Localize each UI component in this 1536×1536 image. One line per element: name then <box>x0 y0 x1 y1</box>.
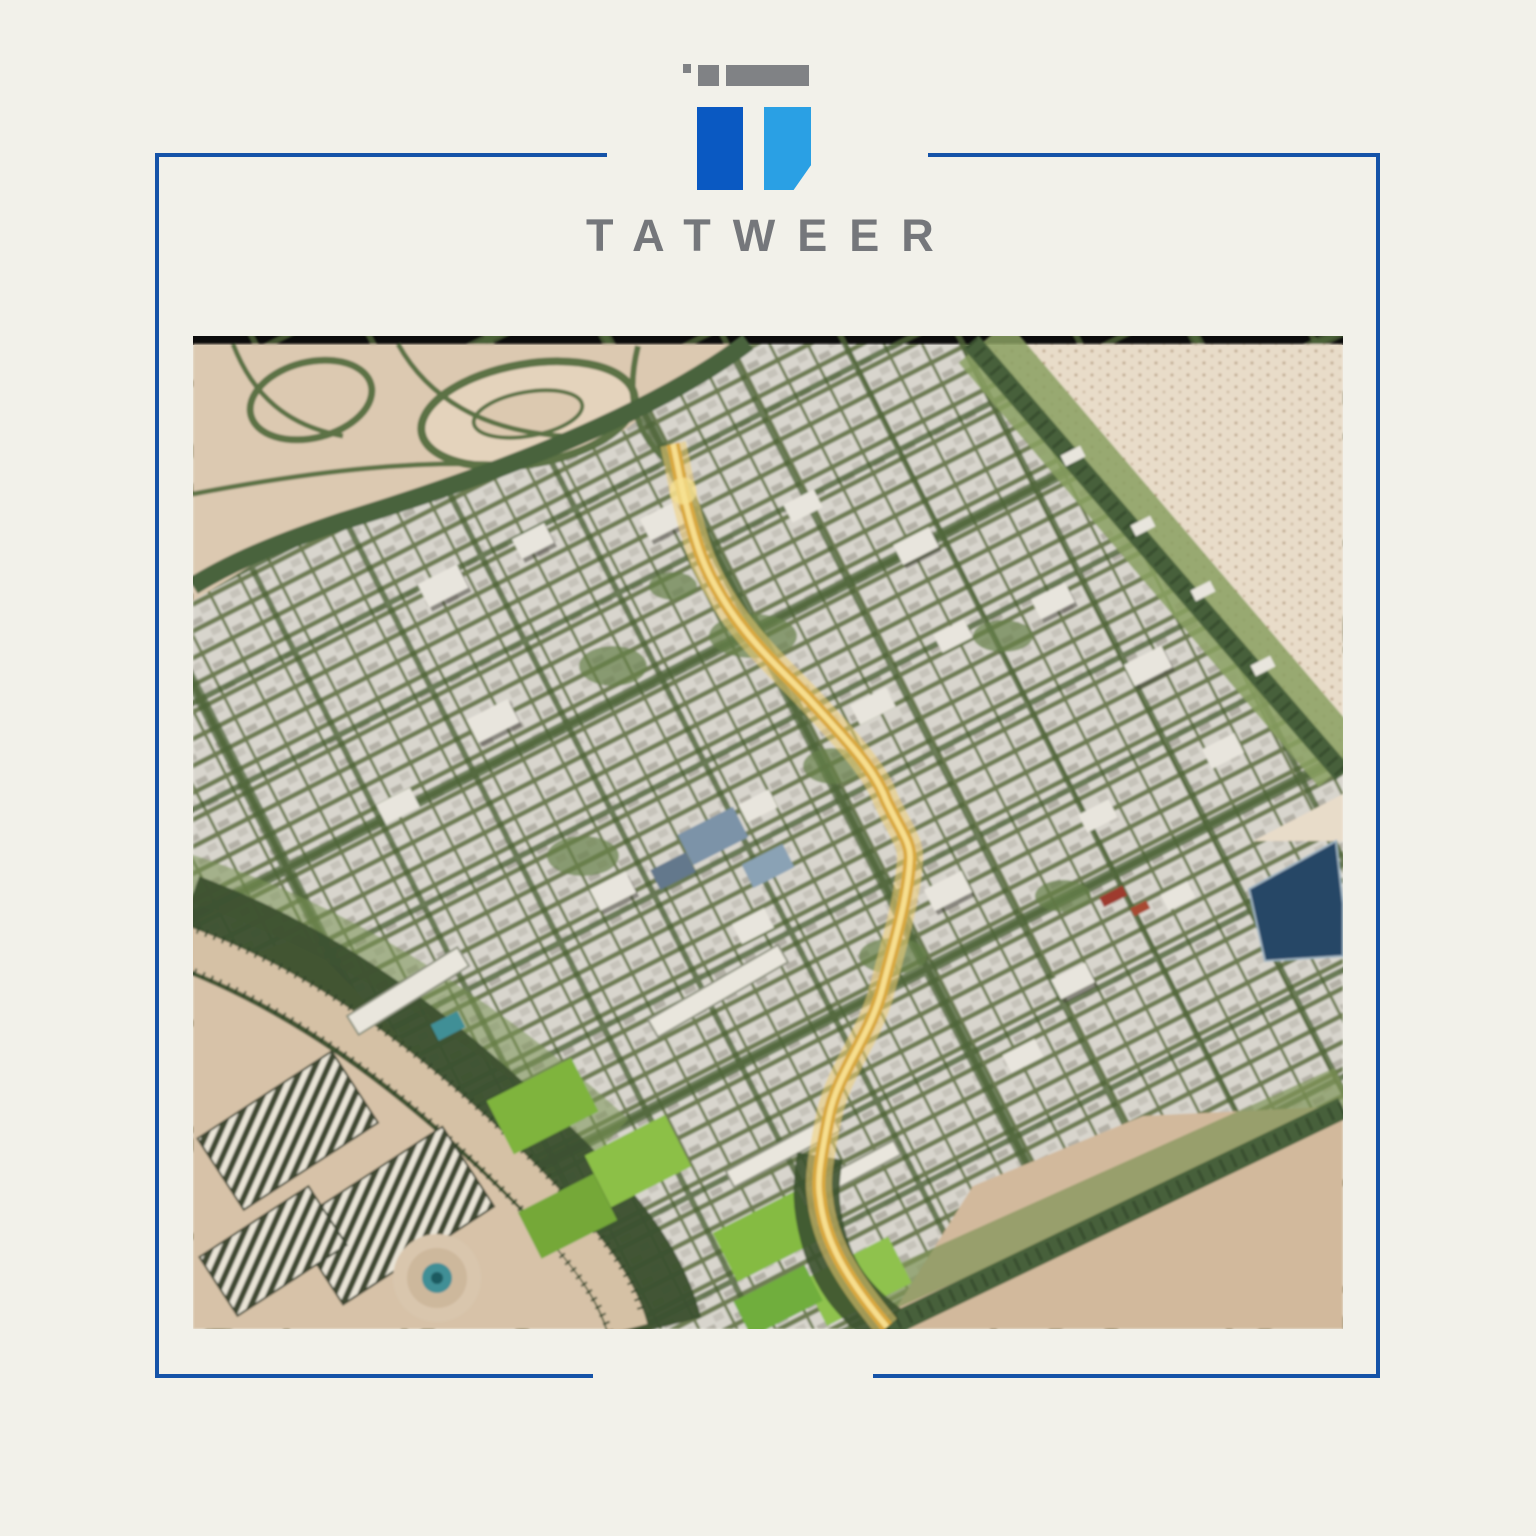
aerial-illustration <box>193 336 1343 1329</box>
logo-dot <box>683 64 691 73</box>
masterplan-aerial-image <box>193 336 1343 1329</box>
image-top-black-bar <box>193 336 1343 345</box>
frame-border-left <box>155 153 159 1378</box>
logo-right-column <box>764 107 811 190</box>
logo-square <box>698 65 719 86</box>
frame-border-bottom-right <box>873 1374 1380 1378</box>
fountain-plaza <box>393 1234 481 1322</box>
logo-left-column <box>697 107 743 190</box>
brand-wordmark: TATWEER <box>586 213 956 258</box>
frame-border-right <box>1376 153 1380 1378</box>
logo-top-bar <box>726 65 809 86</box>
frame-border-top-right <box>928 153 1380 157</box>
frame-border-top-left <box>155 153 607 157</box>
frame-border-bottom-left <box>155 1374 593 1378</box>
